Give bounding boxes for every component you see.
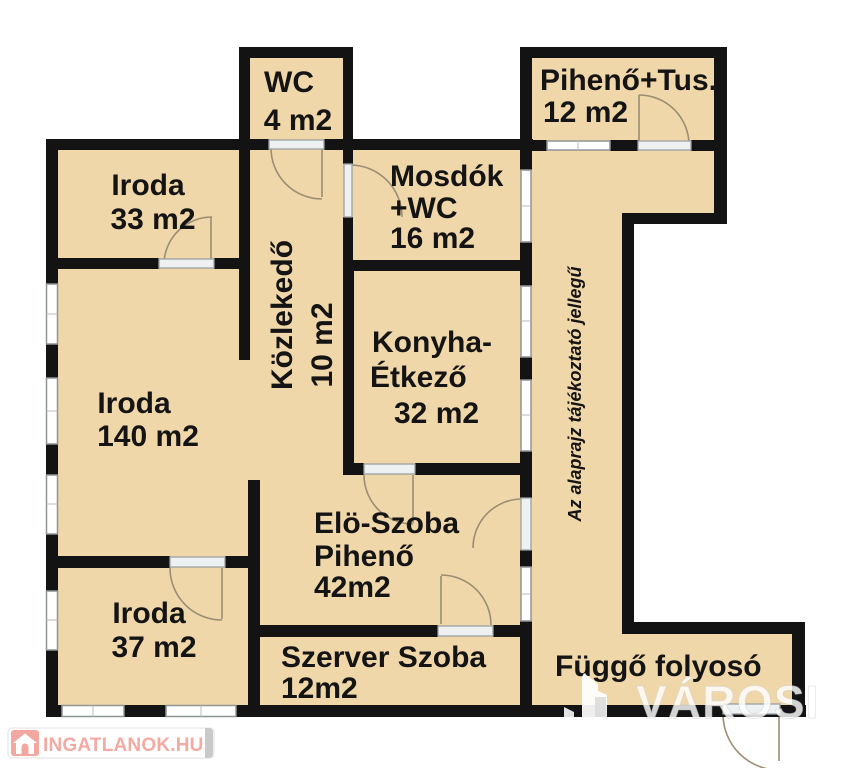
- svg-text:32 m2: 32 m2: [394, 397, 479, 430]
- svg-text:Elö-Szoba: Elö-Szoba: [314, 507, 459, 540]
- svg-text:Az alaprajz tájékoztató jelleg: Az alaprajz tájékoztató jellegű: [565, 265, 585, 522]
- svg-text:12 m2: 12 m2: [543, 96, 628, 129]
- svg-text:10 m2: 10 m2: [306, 302, 339, 387]
- svg-text:Pihenő+Tus.: Pihenő+Tus.: [540, 64, 717, 97]
- svg-text:37 m2: 37 m2: [111, 631, 196, 664]
- svg-text:Mosdók: Mosdók: [390, 160, 504, 193]
- svg-text:WC: WC: [264, 66, 314, 99]
- svg-text:Iroda: Iroda: [111, 169, 185, 202]
- svg-text:12m2: 12m2: [281, 672, 358, 705]
- svg-text:140 m2: 140 m2: [97, 420, 199, 453]
- svg-text:Iroda: Iroda: [97, 387, 171, 420]
- svg-text:+WC: +WC: [390, 192, 458, 225]
- svg-text:INGATLANOK.HU: INGATLANOK.HU: [43, 735, 204, 756]
- svg-text:16 m2: 16 m2: [390, 222, 475, 255]
- svg-text:Pihenő: Pihenő: [314, 540, 414, 573]
- svg-text:Szerver Szoba: Szerver Szoba: [281, 641, 486, 674]
- svg-text:Közlekedő: Közlekedő: [266, 240, 299, 390]
- svg-text:Iroda: Iroda: [112, 597, 186, 630]
- svg-text:Étkező: Étkező: [370, 360, 467, 394]
- svg-text:42m2: 42m2: [314, 571, 391, 604]
- svg-text:33 m2: 33 m2: [110, 203, 195, 236]
- svg-text:VÁROSI: VÁROSI: [636, 676, 820, 728]
- svg-text:Konyha-: Konyha-: [372, 326, 492, 359]
- svg-text:4 m2: 4 m2: [264, 104, 332, 137]
